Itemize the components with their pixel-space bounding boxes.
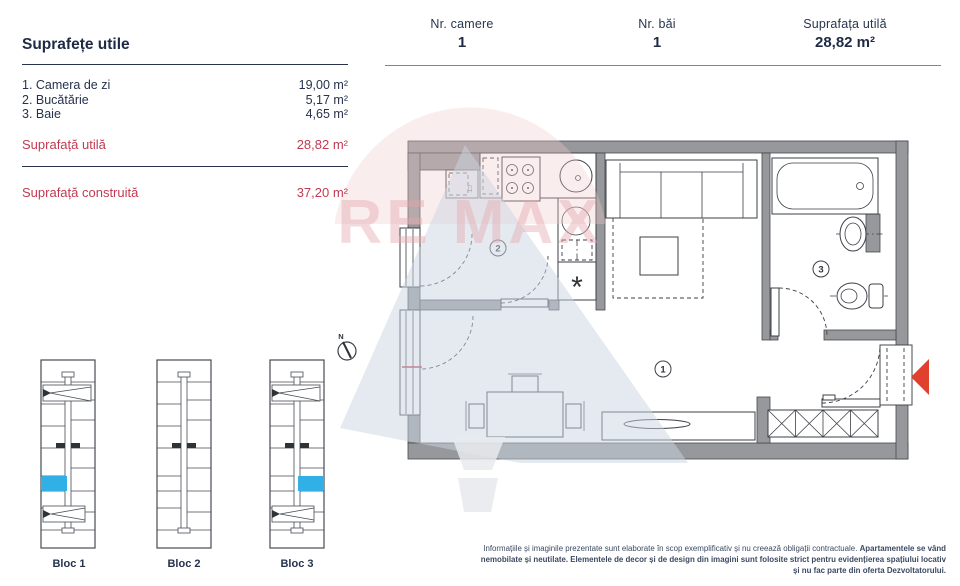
compass: N [338,332,356,360]
bathtub [772,158,878,214]
disclaimer: Informațiile și imaginile prezentate sun… [476,543,946,576]
dining-table [487,392,563,437]
room-number-3: 3 [818,265,823,276]
useful-area-value: 28,82 m² [297,137,348,152]
compass-north-label: N [338,332,343,341]
built-area-divider [22,166,348,167]
stat-area-value: 28,82 m² [803,34,887,51]
building-blocks [41,360,324,548]
surfaces-rows: 1. Camera de zi 19,00 m² 2. Bucătărie 5,… [22,78,348,122]
bloc-1-highlighted-unit [42,476,67,491]
stat-rooms-label: Nr. camere [430,17,493,31]
surface-row: 1. Camera de zi 19,00 m² [22,78,348,93]
surface-row: 3. Baie 4,65 m² [22,107,348,122]
boiler-label: CT [466,185,472,193]
stove [502,157,540,201]
chair-top [512,376,538,392]
coffee-table [640,237,678,275]
entrance-jamb [880,345,912,405]
surface-row-label: 2. Bucătărie [22,93,89,108]
bloc-3-highlighted-unit [298,476,323,491]
surface-row-value: 4,65 m² [306,107,348,122]
surface-row-label: 1. Camera de zi [22,78,110,93]
stat-baths: Nr. băi 1 [638,17,676,51]
surface-row-value: 5,17 m² [306,93,348,108]
room-number-2: 2 [495,244,500,255]
chair-left [469,404,484,428]
bathroom-door [771,288,779,336]
chair-right [566,404,581,428]
entrance-arrow [911,359,929,395]
disclaimer-part-1: Informațiile și imaginile prezentate sun… [483,544,857,553]
bloc-1-label: Bloc 1 [52,558,85,570]
toilet [837,283,867,309]
built-area-label: Suprafață construită [22,185,138,200]
stat-area: Suprafața utilă 28,82 m² [803,17,887,51]
surface-row: 2. Bucătărie 5,17 m² [22,93,348,108]
room-number-1: 1 [660,365,666,376]
stat-baths-label: Nr. băi [638,17,676,31]
stat-baths-value: 1 [638,34,676,51]
stat-rooms-value: 1 [430,34,493,51]
bloc-3-label: Bloc 3 [280,558,313,570]
bloc-2-label: Bloc 2 [167,558,200,570]
surface-row-value: 19,00 m² [299,78,348,93]
useful-area-row: Suprafață utilă 28,82 m² [22,137,348,152]
surface-row-label: 3. Baie [22,107,61,122]
balloon-basket [458,478,498,512]
apartment-floor-plan: * CT [400,141,929,459]
tv [624,420,690,429]
surfaces-panel: Suprafețe utile 1. Camera de zi 19,00 m²… [22,36,348,200]
toilet-cistern [869,284,883,308]
stat-area-label: Suprafața utilă [803,17,887,31]
washer-symbol: * [571,271,583,304]
bathroom-sink [840,217,866,251]
sofa [606,160,757,218]
built-area-row: Suprafață construită 37,20 m² [22,185,348,200]
bloc-2-plan [157,360,211,548]
bloc-1-plan [41,360,95,548]
useful-area-label: Suprafață utilă [22,137,106,152]
kitchen-door [501,299,548,307]
stat-rooms: Nr. camere 1 [430,17,493,51]
header-divider [385,65,941,66]
surfaces-title: Suprafețe utile [22,36,348,54]
built-area-value: 37,20 m² [297,185,348,200]
surfaces-divider [22,64,348,65]
bloc-3-plan [270,360,324,548]
